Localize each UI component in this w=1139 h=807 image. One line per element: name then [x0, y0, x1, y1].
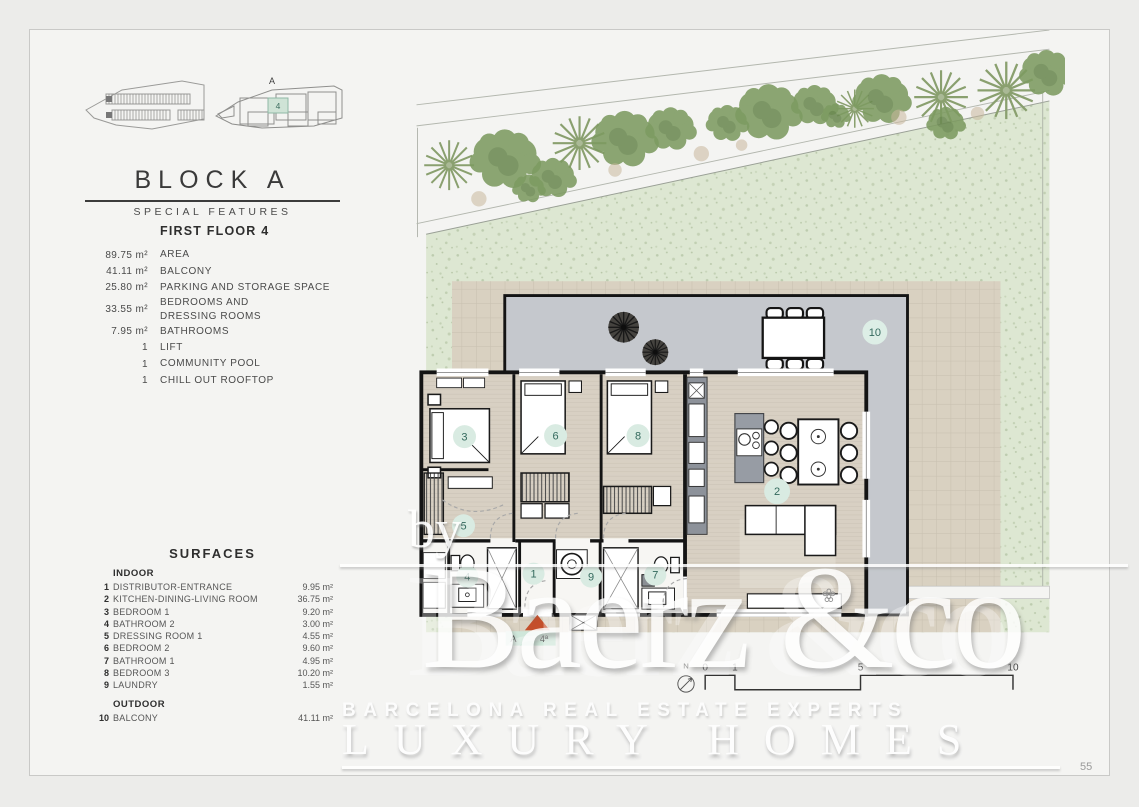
- feature-value: 89.75 m²: [88, 250, 148, 261]
- site-minimaps: A 4: [82, 72, 350, 152]
- feature-value: 25.80 m²: [88, 282, 148, 293]
- surface-name: KITCHEN-DINING-LIVING ROOM: [113, 593, 281, 605]
- surface-area: 4.55 m²: [281, 630, 333, 642]
- surface-row: 3BEDROOM 19.20 m²: [95, 606, 333, 618]
- scale-tick-1: 1: [732, 663, 738, 674]
- feature-label: BATHROOMS: [160, 325, 229, 339]
- surface-row: 5DRESSING ROOM 14.55 m²: [95, 630, 333, 642]
- surface-area: 3.00 m²: [281, 618, 333, 630]
- surfaces-indoor-heading: INDOOR: [113, 568, 333, 579]
- svg-text:8: 8: [635, 430, 641, 442]
- surface-name: BEDROOM 3: [113, 667, 281, 679]
- surface-name: DRESSING ROOM 1: [113, 630, 281, 642]
- surface-area: 9.95 m²: [281, 581, 333, 593]
- feature-row: 1CHILL OUT ROOFTOP: [88, 372, 356, 388]
- page-number: 55: [1080, 761, 1092, 773]
- badge-room-2: 2: [764, 478, 790, 504]
- feature-row: 1LIFT: [88, 340, 356, 356]
- surface-area: 41.11 m²: [281, 712, 333, 724]
- surface-number: 5: [95, 630, 109, 642]
- surface-name: BEDROOM 1: [113, 606, 281, 618]
- surface-row: 10BALCONY41.11 m²: [95, 712, 333, 724]
- svg-text:10: 10: [869, 327, 881, 339]
- surface-number: 7: [95, 655, 109, 667]
- badge-room-7: 7: [644, 564, 666, 586]
- feature-value: 41.11 m²: [88, 266, 148, 277]
- north-label: N: [683, 662, 689, 671]
- minimap-parking: [86, 81, 204, 129]
- surface-number: 8: [95, 667, 109, 679]
- feature-value: 1: [88, 359, 148, 370]
- surface-name: LAUNDRY: [113, 679, 281, 691]
- surface-number: 4: [95, 618, 109, 630]
- dining-table: [780, 419, 857, 484]
- feature-value: 1: [88, 342, 148, 353]
- minimap-block-a: A 4: [216, 76, 342, 128]
- feature-value: 33.55 m²: [88, 304, 148, 315]
- features-list: FIRST FLOOR 4 89.75 m²AREA41.11 m²BALCON…: [88, 224, 356, 389]
- outdoor-dining-table: [763, 308, 824, 369]
- surface-number: 6: [95, 642, 109, 654]
- scale-tick-10: 10: [1007, 663, 1019, 674]
- surface-name: BEDROOM 2: [113, 642, 281, 654]
- feature-label: CHILL OUT ROOFTOP: [160, 374, 274, 388]
- surfaces-title: SURFACES: [85, 546, 340, 561]
- entrance-unit-label: 4ª: [540, 634, 549, 644]
- surface-area: 10.20 m²: [281, 667, 333, 679]
- surface-row: 1DISTRIBUTOR-ENTRANCE9.95 m²: [95, 581, 333, 593]
- feature-row: 1COMMUNITY POOL: [88, 356, 356, 372]
- kitchen-cabinets: [687, 377, 707, 534]
- svg-text:9: 9: [588, 571, 594, 583]
- feature-label: BEDROOMS AND DRESSING ROOMS: [160, 296, 261, 323]
- brochure-page: A 4 BLOCK A SPECIAL FEATURES FIRST FLOOR…: [0, 0, 1139, 807]
- page-title: BLOCK A: [85, 166, 340, 195]
- badge-room-4: 4: [456, 566, 478, 588]
- surface-row: 2KITCHEN-DINING-LIVING ROOM36.75 m²: [95, 593, 333, 605]
- feature-label: LIFT: [160, 341, 183, 355]
- surface-row: 7BATHROOM 14.95 m²: [95, 655, 333, 667]
- badge-room-10: 10: [862, 320, 887, 345]
- floor-plan: A 4ª 3 6 8 5 2 4 1 9 7 10 N 0 1 5 10: [400, 30, 1065, 730]
- surface-number: 3: [95, 606, 109, 618]
- kitchen-island: [735, 414, 778, 483]
- surface-number: 1: [95, 581, 109, 593]
- balcony-plant: [642, 339, 668, 365]
- surfaces-outdoor-rows: 10BALCONY41.11 m²: [95, 712, 333, 724]
- scale-bar: N 0 1 5 10: [678, 662, 1019, 692]
- surface-number: 9: [95, 679, 109, 691]
- surface-area: 9.60 m²: [281, 642, 333, 654]
- surface-area: 36.75 m²: [281, 593, 333, 605]
- surface-area: 9.20 m²: [281, 606, 333, 618]
- surface-number: 2: [95, 593, 109, 605]
- feature-label: BALCONY: [160, 265, 212, 279]
- feature-value: 7.95 m²: [88, 326, 148, 337]
- badge-room-1: 1: [523, 563, 545, 585]
- minimap-unit-number: 4: [276, 101, 281, 111]
- badge-room-9: 9: [580, 566, 602, 588]
- svg-text:4: 4: [464, 571, 470, 583]
- badge-room-8: 8: [627, 424, 650, 447]
- badge-room-5: 5: [452, 514, 475, 537]
- feature-row: 7.95 m²BATHROOMS: [88, 323, 356, 339]
- svg-text:7: 7: [652, 569, 658, 581]
- badge-room-6: 6: [544, 424, 567, 447]
- feature-label: COMMUNITY POOL: [160, 357, 260, 371]
- surface-area: 1.55 m²: [281, 679, 333, 691]
- surfaces-outdoor-heading: OUTDOOR: [113, 699, 333, 710]
- surface-row: 4BATHROOM 23.00 m²: [95, 618, 333, 630]
- feature-value: 1: [88, 375, 148, 386]
- scale-tick-5: 5: [858, 663, 864, 674]
- surface-number: 10: [95, 712, 109, 724]
- page-subtitle: SPECIAL FEATURES: [85, 206, 340, 218]
- feature-label: AREA: [160, 248, 190, 262]
- surface-row: 6BEDROOM 29.60 m²: [95, 642, 333, 654]
- feature-row: 41.11 m²BALCONY: [88, 263, 356, 279]
- scale-tick-0: 0: [702, 663, 708, 674]
- svg-text:3: 3: [461, 431, 467, 443]
- feature-row: 89.75 m²AREA: [88, 247, 356, 263]
- features-title: FIRST FLOOR 4: [160, 224, 356, 238]
- svg-text:2: 2: [774, 486, 780, 498]
- svg-text:6: 6: [553, 430, 559, 442]
- feature-row: 33.55 m²BEDROOMS AND DRESSING ROOMS: [88, 296, 356, 323]
- surface-name: BATHROOM 2: [113, 618, 281, 630]
- surface-area: 4.95 m²: [281, 655, 333, 667]
- apartment: [421, 368, 870, 630]
- surface-name: BALCONY: [113, 712, 281, 724]
- surface-name: BATHROOM 1: [113, 655, 281, 667]
- surface-row: 8BEDROOM 310.20 m²: [95, 667, 333, 679]
- surface-row: 9LAUNDRY1.55 m²: [95, 679, 333, 691]
- title-divider: [85, 200, 340, 202]
- surfaces-indoor-rows: 1DISTRIBUTOR-ENTRANCE9.95 m²2KITCHEN-DIN…: [95, 581, 333, 692]
- surfaces-table: INDOOR 1DISTRIBUTOR-ENTRANCE9.95 m²2KITC…: [95, 566, 333, 724]
- svg-text:5: 5: [460, 521, 466, 533]
- feature-row: 25.80 m²PARKING AND STORAGE SPACE: [88, 280, 356, 296]
- surface-name: DISTRIBUTOR-ENTRANCE: [113, 581, 281, 593]
- svg-text:1: 1: [530, 569, 536, 581]
- feature-label: PARKING AND STORAGE SPACE: [160, 281, 330, 295]
- features-rows: 89.75 m²AREA41.11 m²BALCONY25.80 m²PARKI…: [88, 247, 356, 389]
- minimap-block-label: A: [269, 76, 275, 86]
- entrance-block-label: A: [510, 634, 517, 644]
- badge-room-3: 3: [453, 425, 476, 448]
- balcony-plant: [608, 312, 639, 343]
